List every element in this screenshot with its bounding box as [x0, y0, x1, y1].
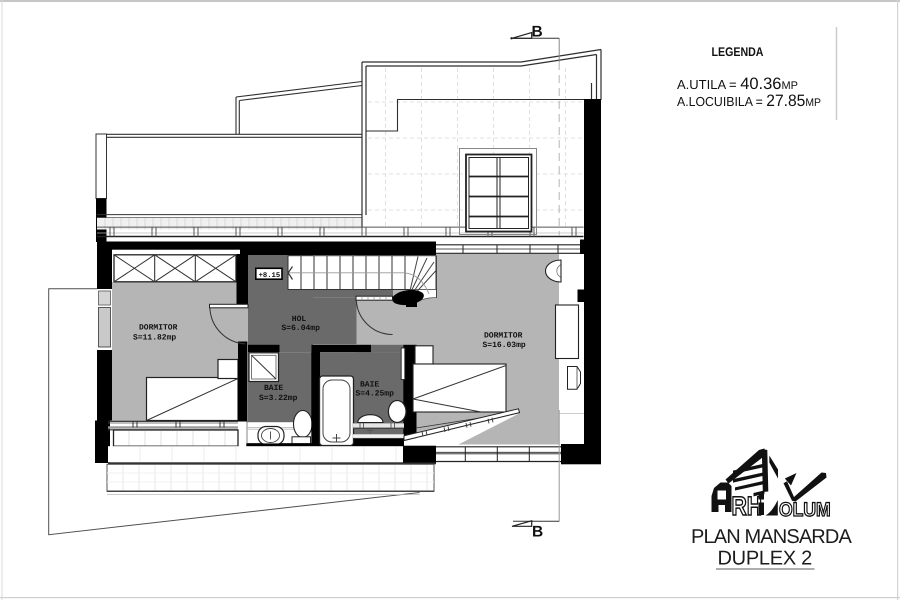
svg-text:BAIE: BAIE — [360, 381, 379, 390]
svg-text:HOL: HOL — [292, 315, 307, 324]
svg-text:S=4.25mp: S=4.25mp — [356, 389, 395, 398]
svg-text:S=6.04mp: S=6.04mp — [282, 324, 321, 333]
svg-text:B: B — [532, 524, 543, 541]
svg-text:+8.15: +8.15 — [259, 272, 281, 280]
svg-text:B: B — [532, 24, 543, 41]
svg-text:DORMITOR: DORMITOR — [484, 332, 523, 341]
svg-text:S=3.22mp: S=3.22mp — [259, 394, 298, 403]
svg-text:DUPLEX 2: DUPLEX 2 — [718, 547, 814, 569]
svg-text:A.LOCUIBILA = 27.85MP: A.LOCUIBILA = 27.85MP — [677, 92, 821, 110]
svg-text:A.UTILA = 40.36MP: A.UTILA = 40.36MP — [677, 75, 798, 93]
svg-text:BAIE: BAIE — [264, 384, 283, 393]
svg-text:DORMITOR: DORMITOR — [139, 324, 178, 333]
svg-text:OLUM: OLUM — [779, 499, 831, 521]
svg-text:LEGENDA: LEGENDA — [712, 45, 764, 59]
svg-text:PLAN MANSARDA: PLAN MANSARDA — [691, 526, 853, 548]
svg-text:S=16.03mp: S=16.03mp — [483, 341, 526, 350]
svg-text:S=11.82mp: S=11.82mp — [133, 334, 176, 343]
svg-text:RH: RH — [732, 491, 763, 521]
